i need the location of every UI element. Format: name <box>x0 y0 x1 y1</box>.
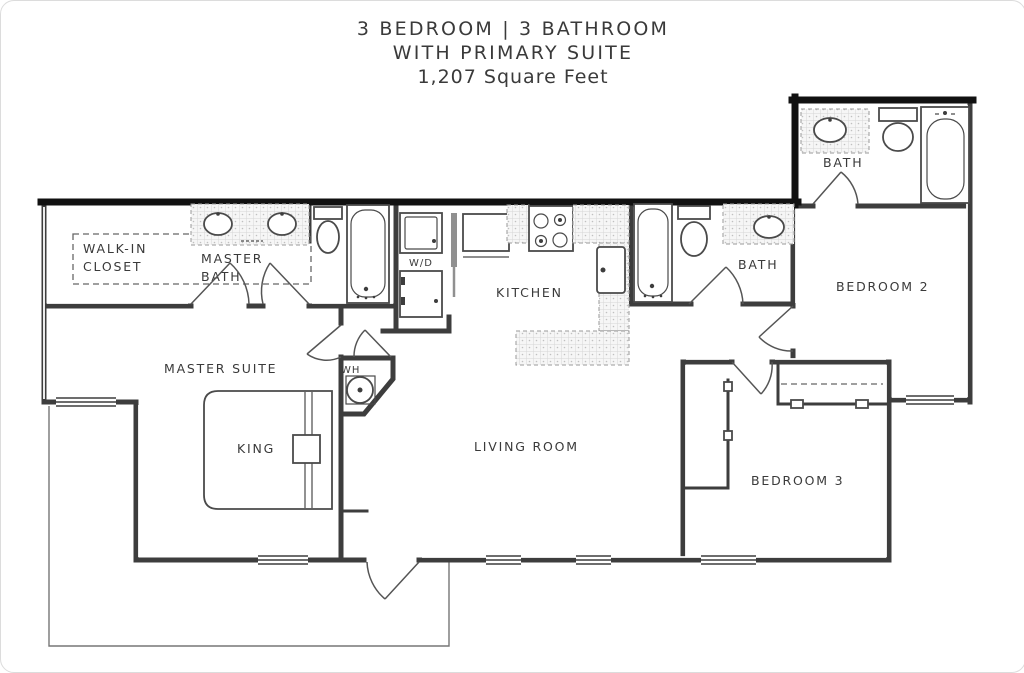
window-living-1 <box>486 555 521 565</box>
bedroom2-door <box>759 306 793 351</box>
bedroom-3: BEDROOM 3 <box>685 362 886 488</box>
bedroom-2: BEDROOM 2 <box>836 279 929 294</box>
walk-in-closet-label-1: WALK-IN <box>83 241 147 256</box>
master-bath: MASTER BATH <box>191 204 389 303</box>
window-master-side <box>56 397 116 407</box>
upper-bath-toilet <box>879 108 917 151</box>
dryer <box>400 271 442 317</box>
kitchen-peninsula-counter <box>516 331 629 365</box>
master-bath-sink-left <box>204 213 232 235</box>
water-heater-label: WH <box>341 365 360 376</box>
hall-bath: BATH <box>634 204 794 302</box>
plan-title: 3 BEDROOM | 3 BATHROOM WITH PRIMARY SUIT… <box>357 18 669 88</box>
water-heater: WH <box>341 365 375 404</box>
hall-bath-toilet <box>678 206 710 256</box>
upper-bath-door <box>813 172 858 204</box>
king-bed-cushion <box>293 435 320 463</box>
window-bedroom3 <box>701 555 756 565</box>
master-bath-label-1: MASTER <box>201 251 263 266</box>
bedroom3-top-closet <box>778 362 886 408</box>
bedroom3-side-closet <box>685 380 732 488</box>
floor-plan-drawing: 3 BEDROOM | 3 BATHROOM WITH PRIMARY SUIT… <box>1 1 1024 672</box>
upper-bath-label: BATH <box>823 155 863 170</box>
walls <box>44 102 970 560</box>
master-suite-door <box>307 325 341 360</box>
master-bath-tub <box>347 205 389 303</box>
kitchen-counter-left <box>507 205 529 243</box>
hall-bath-tub <box>634 204 672 302</box>
upper-bath-tub <box>921 107 969 203</box>
kitchen-stove <box>529 206 573 251</box>
title-line-2: WITH PRIMARY SUITE <box>393 42 633 64</box>
living-room-label: LIVING ROOM <box>474 439 579 454</box>
title-line-3: 1,207 Square Feet <box>417 66 608 88</box>
laundry-door <box>451 213 457 297</box>
master-bath-toilet <box>314 207 342 253</box>
hall-bath-door <box>689 267 743 304</box>
kitchen-counter-top-right <box>573 205 629 243</box>
hall-bath-sink <box>754 216 784 238</box>
bedroom2-label: BEDROOM 2 <box>836 279 929 294</box>
master-bath-sink-right <box>268 213 296 235</box>
washer <box>400 213 442 253</box>
floor-plan-page: 3 BEDROOM | 3 BATHROOM WITH PRIMARY SUIT… <box>0 0 1024 673</box>
bedroom3-label: BEDROOM 3 <box>751 473 844 488</box>
laundry-closet: W/D <box>400 213 457 317</box>
living-room: LIVING ROOM <box>343 439 579 511</box>
window-bedroom2 <box>906 395 954 405</box>
kitchen-fridge <box>597 247 625 293</box>
washer-dryer-label: W/D <box>409 258 433 269</box>
window-living-2 <box>576 555 611 565</box>
king-bed: KING <box>204 391 332 509</box>
master-suite-label: MASTER SUITE <box>164 361 277 376</box>
entry-door <box>367 562 419 599</box>
kitchen: KITCHEN <box>463 205 629 365</box>
water-heater-door <box>354 330 391 357</box>
window-master-front <box>258 555 308 565</box>
walk-in-closet-label-2: CLOSET <box>83 259 142 274</box>
king-bed-label: KING <box>237 441 275 456</box>
kitchen-label: KITCHEN <box>496 285 563 300</box>
kitchen-cabinet <box>463 214 509 251</box>
bedroom3-door <box>732 362 772 394</box>
title-line-1: 3 BEDROOM | 3 BATHROOM <box>357 18 669 40</box>
hall-bath-label: BATH <box>738 257 778 272</box>
